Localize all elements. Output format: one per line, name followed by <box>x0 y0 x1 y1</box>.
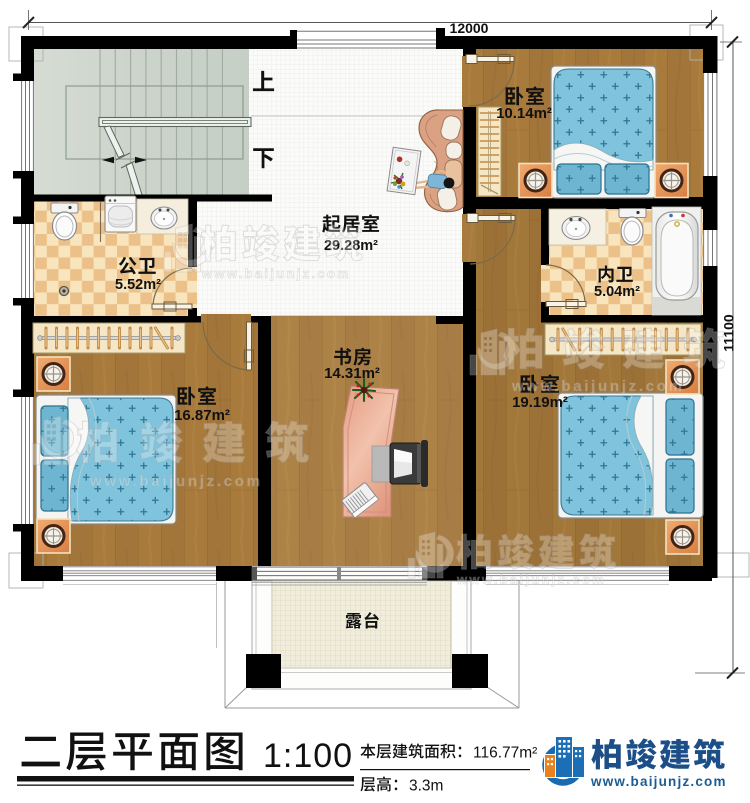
svg-text:11100: 11100 <box>721 314 737 352</box>
svg-text:12000: 12000 <box>450 20 489 36</box>
svg-text:10.14m²: 10.14m² <box>496 105 552 122</box>
svg-text:16.87m²: 16.87m² <box>174 407 230 424</box>
svg-text:5.52m²: 5.52m² <box>115 277 161 293</box>
svg-text:www.baijunjz.com: www.baijunjz.com <box>511 378 685 395</box>
svg-text:www.baijunjz.com: www.baijunjz.com <box>590 774 727 789</box>
svg-text:19.19m²: 19.19m² <box>512 394 568 411</box>
svg-text:3.3m: 3.3m <box>409 778 443 795</box>
svg-text:www.baijunjz.com: www.baijunjz.com <box>89 473 263 490</box>
svg-text:www.baijunjz.com: www.baijunjz.com <box>201 266 351 281</box>
svg-text:116.77m²: 116.77m² <box>473 745 537 762</box>
svg-text:14.31m²: 14.31m² <box>324 365 380 382</box>
svg-text:www.baijunjz.com: www.baijunjz.com <box>456 572 606 587</box>
svg-text:1:100: 1:100 <box>263 737 353 775</box>
svg-text:5.04m²: 5.04m² <box>594 284 640 300</box>
